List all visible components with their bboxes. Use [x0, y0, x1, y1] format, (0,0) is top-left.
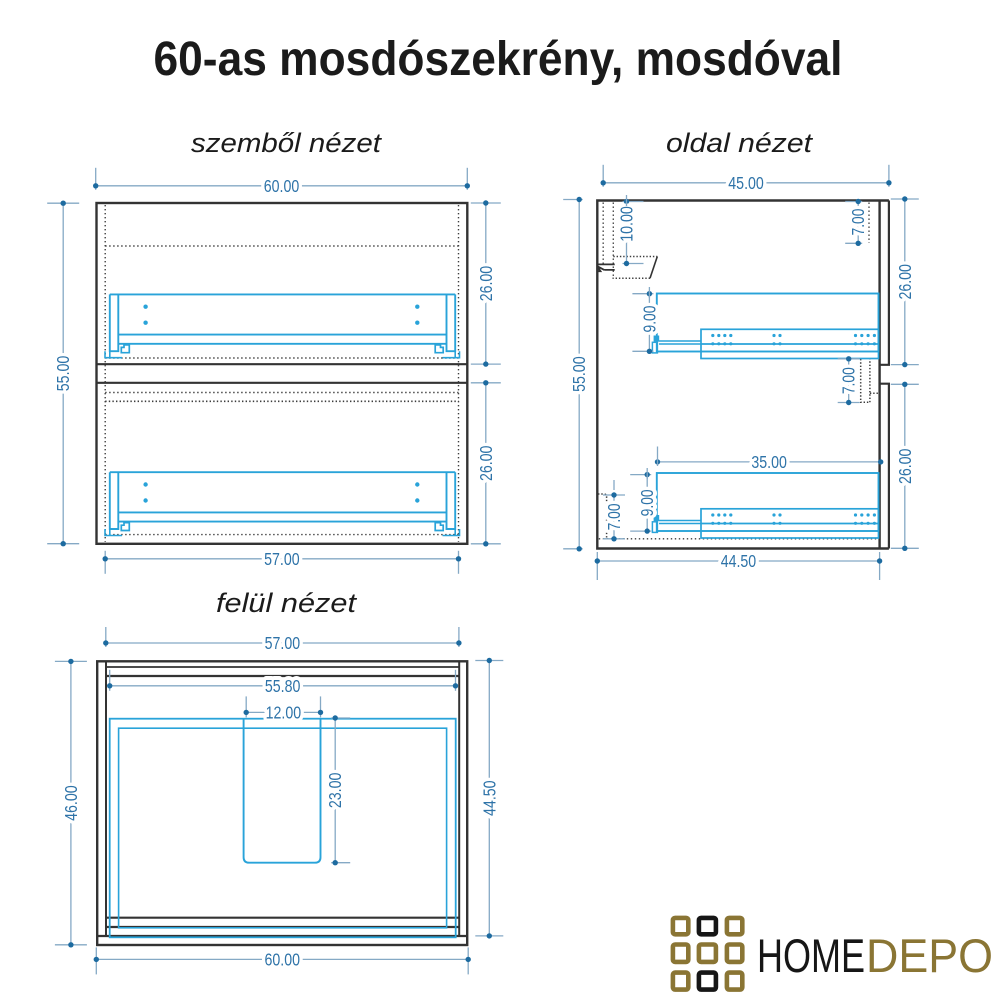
svg-text:7.00: 7.00 — [848, 208, 868, 235]
svg-text:44.50: 44.50 — [721, 551, 757, 571]
svg-text:60.00: 60.00 — [264, 176, 300, 196]
svg-text:12.00: 12.00 — [266, 702, 302, 722]
svg-text:55.00: 55.00 — [53, 355, 73, 391]
svg-text:HOME: HOME — [757, 929, 865, 982]
svg-text:DEPO: DEPO — [866, 929, 993, 982]
svg-text:44.50: 44.50 — [479, 780, 499, 816]
svg-text:35.00: 35.00 — [751, 452, 787, 472]
svg-text:23.00: 23.00 — [325, 772, 345, 808]
svg-text:46.00: 46.00 — [61, 785, 81, 821]
svg-text:9.00: 9.00 — [637, 489, 657, 516]
svg-text:10.00: 10.00 — [617, 206, 637, 242]
svg-text:60-as mosdószekrény, mosdóval: 60-as mosdószekrény, mosdóval — [154, 33, 843, 86]
svg-text:7.00: 7.00 — [604, 503, 624, 530]
svg-text:7.00: 7.00 — [839, 367, 859, 394]
svg-text:oldal nézet: oldal nézet — [666, 128, 814, 158]
svg-text:26.00: 26.00 — [476, 266, 496, 302]
svg-text:55.80: 55.80 — [265, 676, 301, 696]
svg-text:57.00: 57.00 — [264, 549, 300, 569]
svg-text:45.00: 45.00 — [728, 173, 764, 193]
svg-text:26.00: 26.00 — [476, 445, 496, 481]
svg-text:60.00: 60.00 — [265, 949, 301, 969]
svg-text:felül nézet: felül nézet — [216, 588, 358, 618]
svg-text:9.00: 9.00 — [639, 305, 659, 332]
svg-text:szemből nézet: szemből nézet — [191, 128, 383, 158]
svg-text:26.00: 26.00 — [895, 448, 915, 484]
svg-text:26.00: 26.00 — [895, 264, 915, 300]
svg-text:57.00: 57.00 — [265, 633, 301, 653]
svg-text:55.00: 55.00 — [569, 356, 589, 392]
